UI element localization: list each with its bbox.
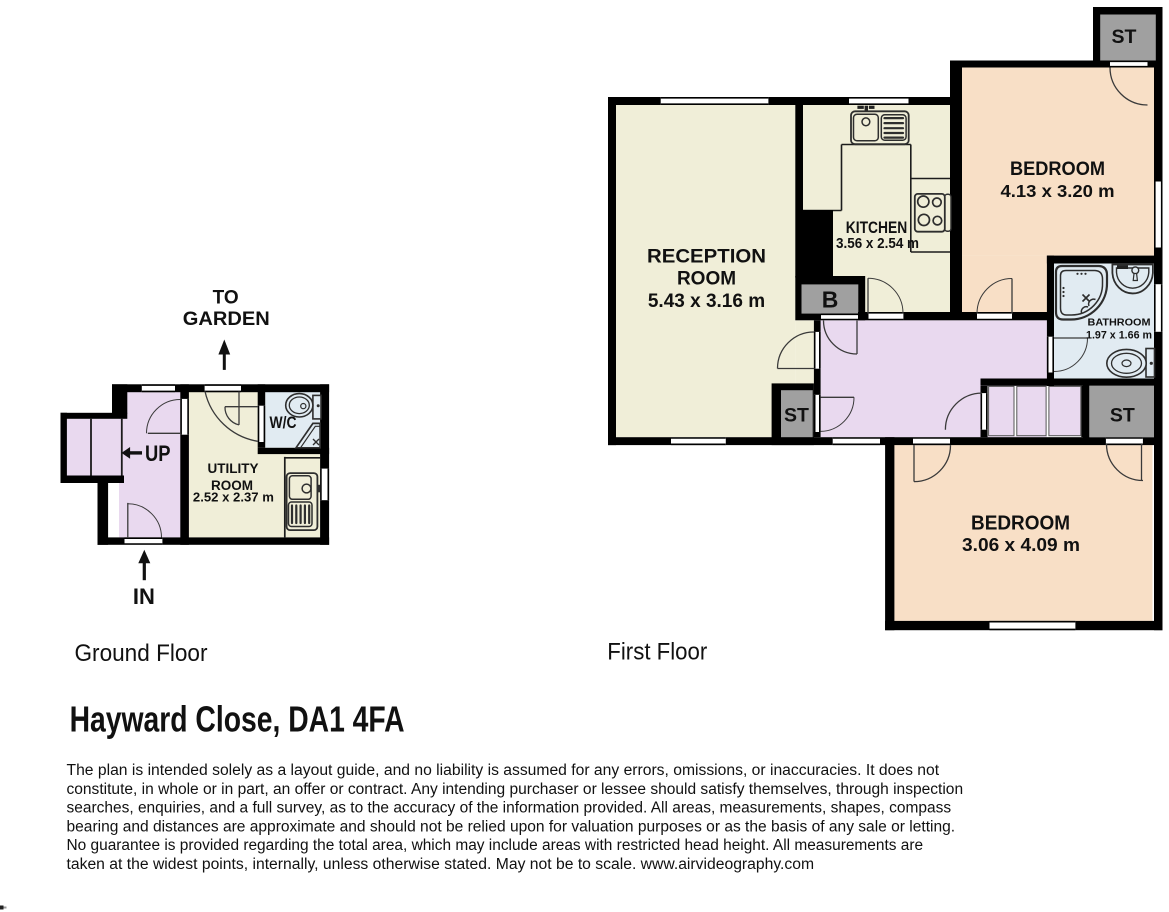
svg-text:searches, enquiries, and a ful: searches, enquiries, and a full survey, … xyxy=(67,800,952,817)
svg-text:B: B xyxy=(822,286,839,312)
svg-text:First Floor: First Floor xyxy=(607,639,707,666)
svg-text:No guarantee is provided regar: No guarantee is provided regarding the t… xyxy=(67,837,924,854)
svg-text:5.43 x 3.16 m: 5.43 x 3.16 m xyxy=(648,291,765,312)
svg-text:W/C: W/C xyxy=(270,414,297,432)
svg-text:KITCHEN: KITCHEN xyxy=(846,219,908,237)
svg-text:bearing and distances are appr: bearing and distances are approximate an… xyxy=(67,818,956,835)
svg-text:2.52 x 2.37 m: 2.52 x 2.37 m xyxy=(193,491,274,505)
svg-text:UP: UP xyxy=(145,441,171,466)
svg-text:1.97 x 1.66 m: 1.97 x 1.66 m xyxy=(1086,329,1152,341)
svg-text:ST: ST xyxy=(784,405,809,427)
svg-text:3.56 x 2.54 m: 3.56 x 2.54 m xyxy=(836,236,919,252)
svg-text:ROOM: ROOM xyxy=(677,269,736,290)
svg-text:The plan is intended solely as: The plan is intended solely as a layout … xyxy=(67,762,940,779)
svg-text:IN: IN xyxy=(133,584,155,609)
svg-text:taken at the widest points, in: taken at the widest points, internally, … xyxy=(67,856,815,873)
svg-text:Ground Floor: Ground Floor xyxy=(75,640,208,667)
svg-text:ST: ST xyxy=(1110,404,1135,426)
svg-text:BEDROOM: BEDROOM xyxy=(971,513,1070,535)
svg-text:GARDEN: GARDEN xyxy=(183,309,270,330)
svg-text:ST: ST xyxy=(1112,26,1137,48)
svg-text:BEDROOM: BEDROOM xyxy=(1010,158,1105,180)
svg-text:Hayward Close, DA1 4FA: Hayward Close, DA1 4FA xyxy=(70,699,405,740)
svg-text:4.13 x 3.20 m: 4.13 x 3.20 m xyxy=(1001,181,1115,201)
svg-text:3.06 x 4.09 m: 3.06 x 4.09 m xyxy=(962,535,1080,555)
svg-text:BATHROOM: BATHROOM xyxy=(1088,318,1151,329)
svg-text:RECEPTION: RECEPTION xyxy=(647,246,766,267)
svg-text:constitute, in whole or in par: constitute, in whole or in part, an offe… xyxy=(67,781,964,798)
svg-text:UTILITY: UTILITY xyxy=(208,461,259,476)
svg-text:TO: TO xyxy=(213,288,239,309)
